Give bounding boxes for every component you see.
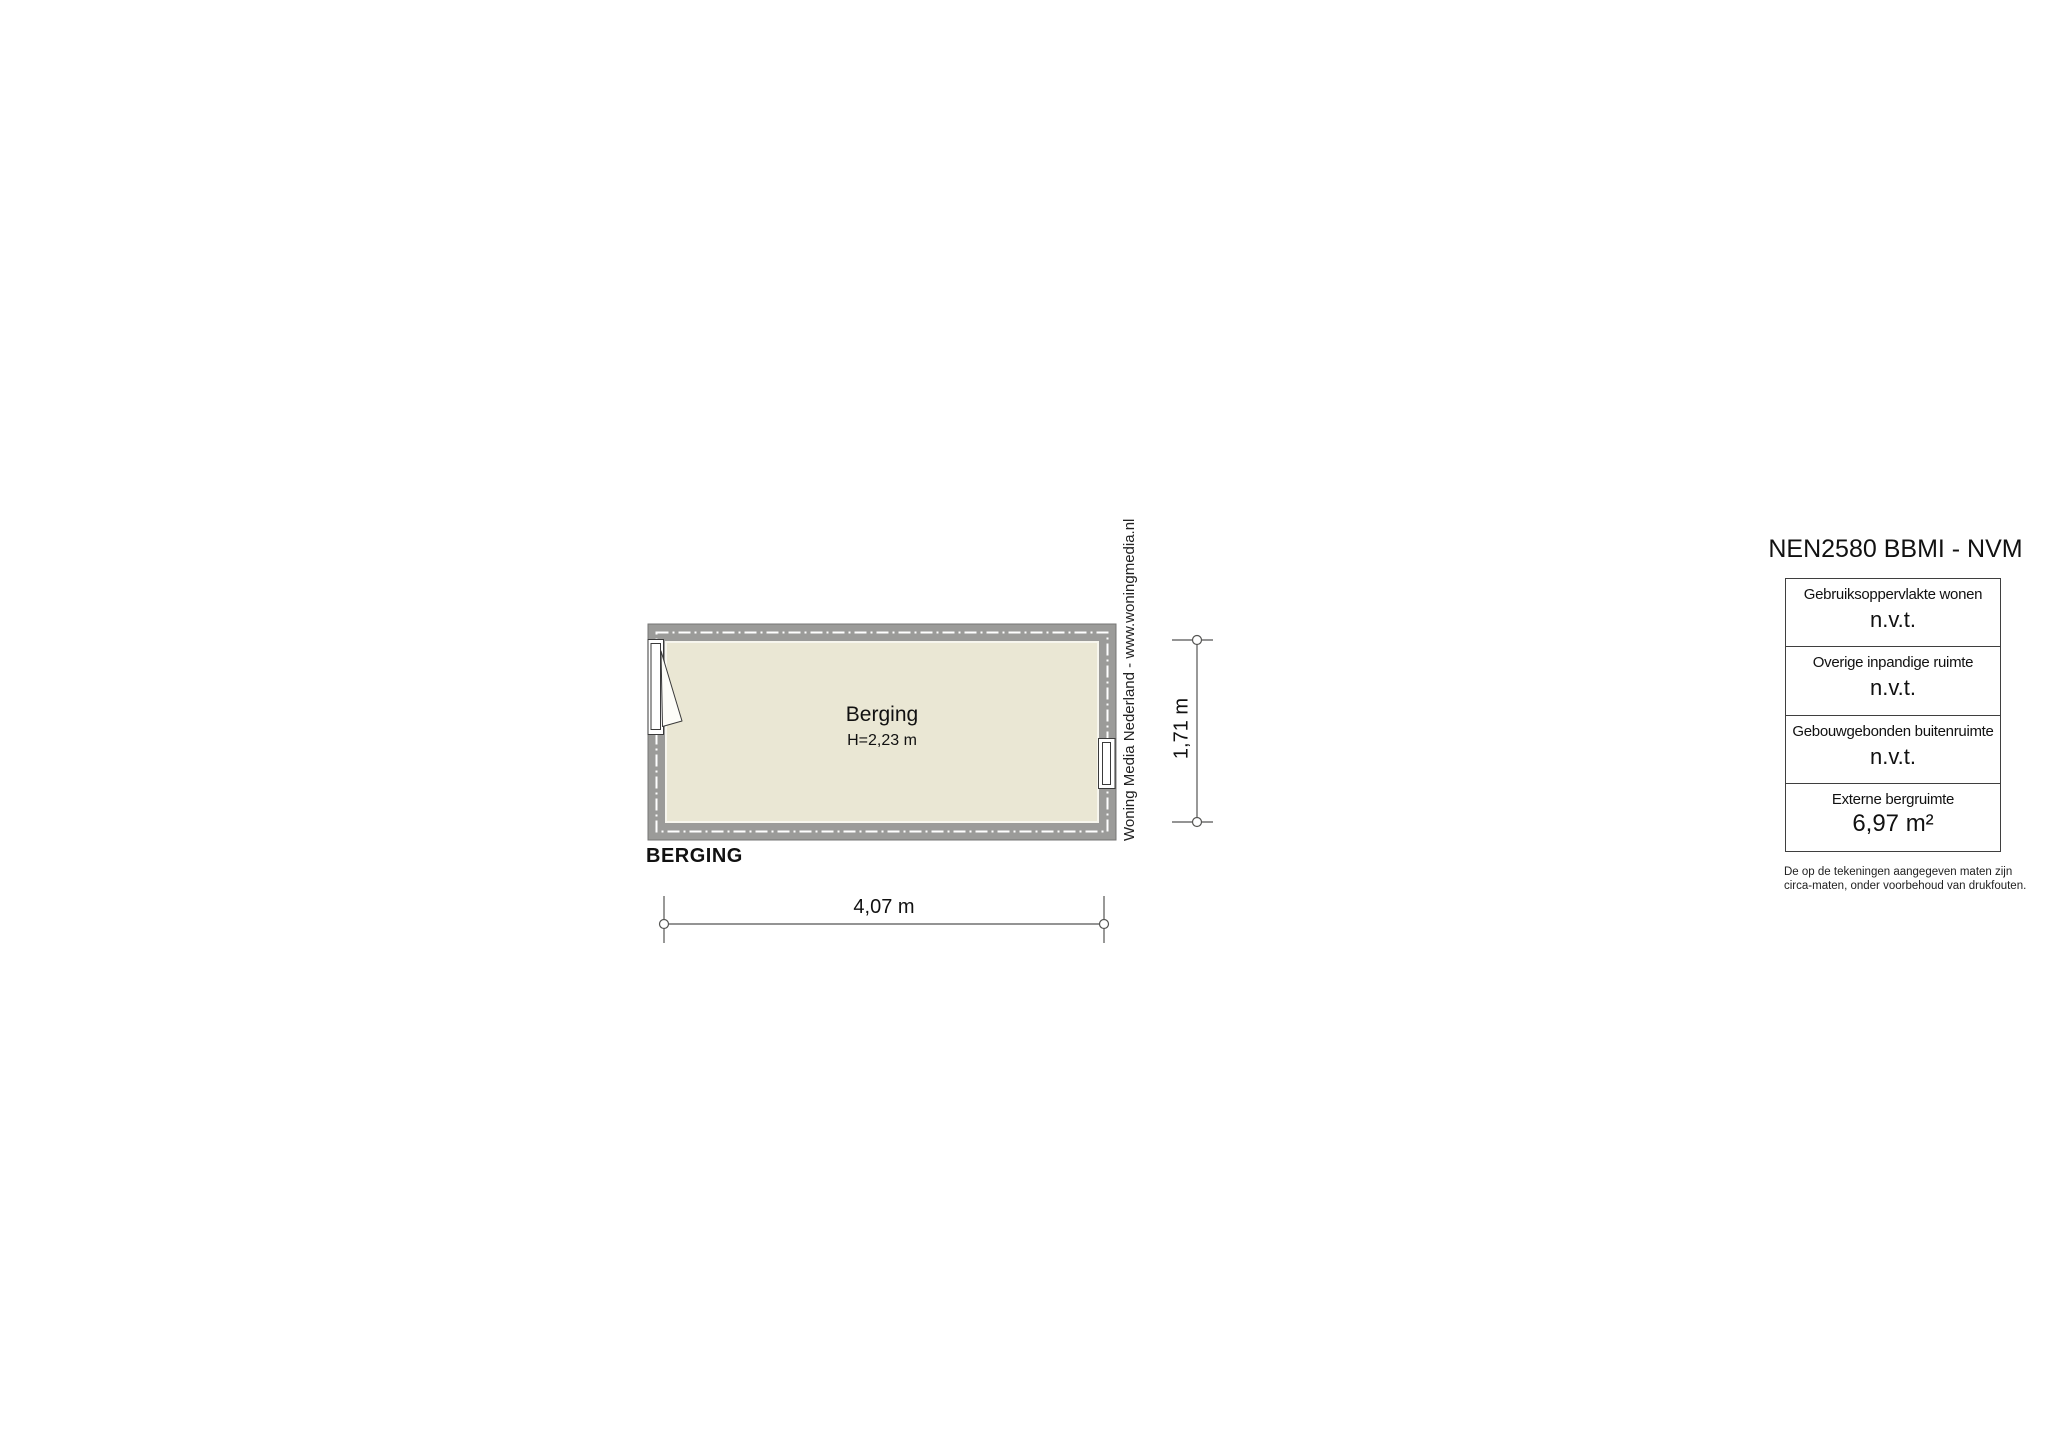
- table-row-gebruiksoppervlakte: Gebruiksoppervlakte wonen n.v.t.: [1786, 579, 2000, 647]
- row-label: Overige inpandige ruimte: [1813, 654, 1973, 671]
- row-label: Gebouwgebonden buitenruimte: [1792, 723, 1993, 740]
- dimension-width-label: 4,07 m: [784, 896, 984, 919]
- room-ceiling-height-label: H=2,23 m: [732, 732, 1032, 750]
- nen2580-title: NEN2580 BBMI - NVM: [1763, 535, 2028, 564]
- row-value: n.v.t.: [1870, 675, 1916, 701]
- disclaimer-line-1: De op de tekeningen aangegeven maten zij…: [1784, 866, 2048, 880]
- disclaimer-line-2: circa-maten, onder voorbehoud van drukfo…: [1784, 880, 2048, 894]
- table-row-overige-inpandige: Overige inpandige ruimte n.v.t.: [1786, 647, 2000, 715]
- nen2580-table: Gebruiksoppervlakte wonen n.v.t. Overige…: [1785, 578, 2001, 852]
- row-value: n.v.t.: [1870, 744, 1916, 770]
- table-row-externe-bergruimte: Externe bergruimte 6,97 m²: [1786, 784, 2000, 851]
- row-value: n.v.t.: [1870, 607, 1916, 633]
- table-row-gebouwgebonden: Gebouwgebonden buitenruimte n.v.t.: [1786, 716, 2000, 784]
- dimension-height-label: 1,71 m: [1171, 679, 1194, 779]
- row-value: 6,97 m²: [1852, 810, 1933, 838]
- disclaimer-text: De op de tekeningen aangegeven maten zij…: [1784, 866, 2048, 893]
- room-name-label: Berging: [732, 703, 1032, 727]
- window-frame-outer: [1099, 739, 1116, 789]
- row-label: Gebruiksoppervlakte wonen: [1804, 586, 1982, 603]
- plan-title: BERGING: [646, 845, 743, 868]
- branding-watermark: Woning Media Nederland - www.woningmedia…: [1121, 529, 1138, 841]
- row-label: Externe bergruimte: [1832, 791, 1954, 808]
